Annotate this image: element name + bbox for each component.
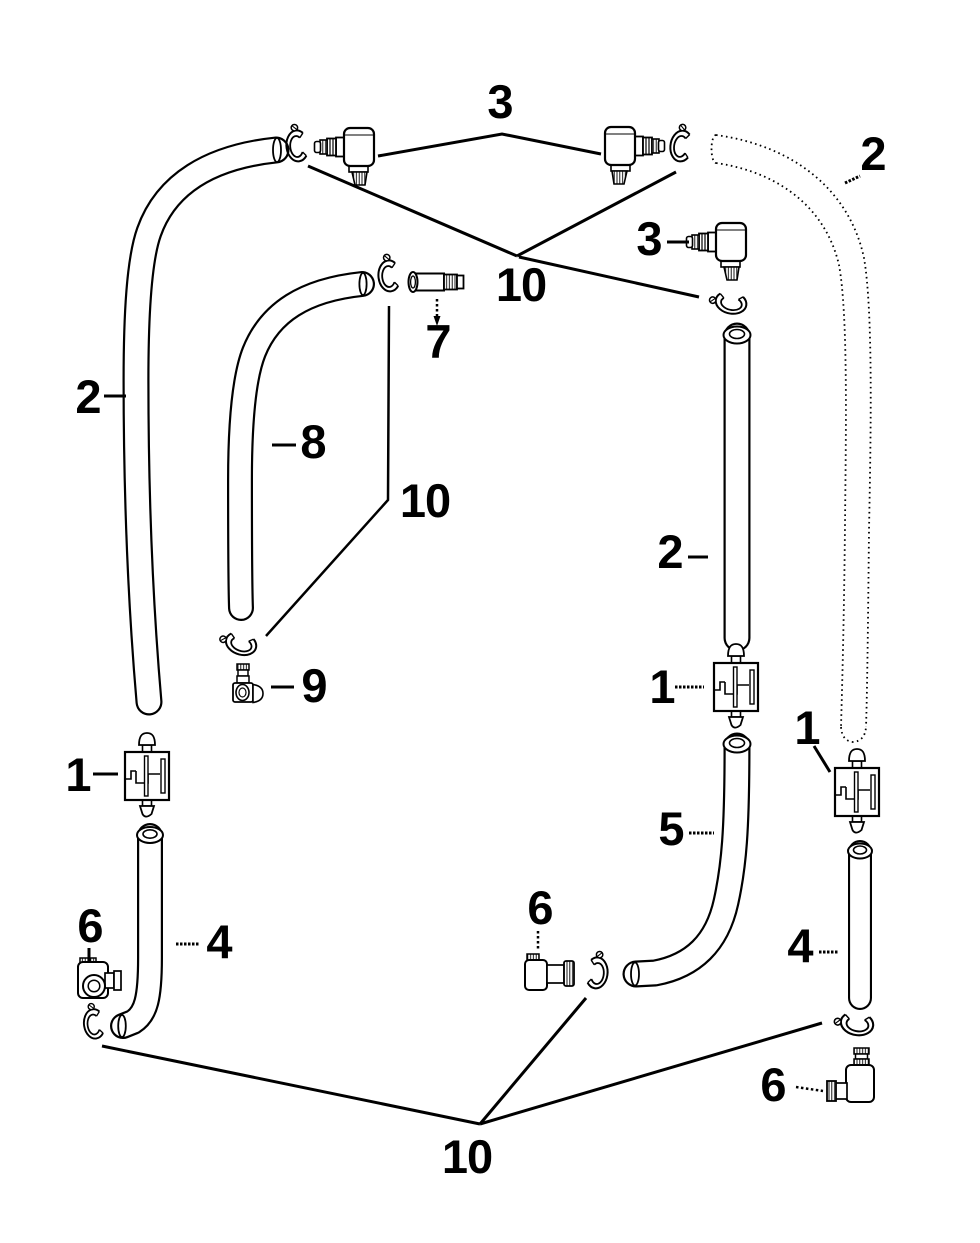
clamp-top-right — [668, 123, 692, 162]
elbow-connector-3-right — [687, 223, 747, 280]
fitting-7 — [409, 272, 464, 292]
hose-5 — [631, 736, 751, 986]
connector-1-left — [125, 733, 169, 817]
clamp-bottom-right — [833, 1011, 875, 1037]
fitting-6-left — [78, 958, 121, 998]
callout-1-left: 1 — [65, 748, 90, 801]
callout-6-left: 6 — [77, 899, 102, 952]
hose-5-opening — [631, 963, 639, 986]
hose-4-right-bore — [854, 846, 867, 854]
callout-10-bottom: 10 — [442, 1130, 492, 1183]
callout-2-middle-right: 2 — [657, 525, 682, 578]
callout-4-left: 4 — [206, 915, 232, 968]
callout-2-left: 2 — [75, 370, 100, 423]
callout-9: 9 — [301, 659, 326, 712]
callout-3-top: 3 — [487, 75, 512, 128]
leader-10-top-a — [308, 166, 517, 256]
hose-4-left-bore — [143, 830, 157, 838]
clamp-hose-8-end — [217, 629, 258, 659]
elbow-connector-3-top-left — [315, 128, 375, 185]
fitting-6-middle — [525, 954, 574, 990]
hose-5-bore — [730, 739, 745, 748]
callout-10-top: 10 — [496, 258, 546, 311]
leader-6-bottom-right — [796, 1087, 823, 1091]
leader-10-bottom-a — [102, 1046, 480, 1124]
parts-diagram: 32310728102911156644610 — [0, 0, 980, 1243]
hose-4-right — [848, 844, 872, 999]
connector-1-middle-right — [714, 644, 758, 728]
callout-5: 5 — [658, 802, 683, 855]
callout-6-middle: 6 — [527, 881, 552, 934]
hose-8-opening — [359, 273, 366, 295]
callout-3-right: 3 — [636, 212, 661, 265]
callout-labels: 32310728102911156644610 — [65, 75, 885, 1183]
callout-1-middle-right: 1 — [649, 660, 674, 713]
fitting-6-bottom-right — [827, 1048, 874, 1102]
clamp-near-fitting-7 — [377, 254, 399, 292]
leader-3-top — [378, 134, 601, 156]
clamp-right-under-elbow — [708, 290, 748, 316]
hose-2-left-opening — [273, 138, 281, 162]
fitting-9 — [233, 664, 263, 703]
hose-2-middle-bore — [730, 330, 745, 339]
callout-7: 7 — [425, 315, 450, 368]
connector-1-far-right — [835, 749, 879, 833]
hose-4-left-opening — [118, 1015, 126, 1037]
callout-4-right: 4 — [787, 919, 813, 972]
callout-2-top-right: 2 — [860, 127, 885, 180]
callout-1-far-right: 1 — [794, 701, 819, 754]
leader-10-bottom-b — [480, 998, 586, 1124]
parts-diagram-page: 32310728102911156644610 — [0, 0, 980, 1243]
hose-2-middle-tube — [724, 327, 751, 639]
callout-8: 8 — [300, 415, 325, 468]
callout-6-bottom-right: 6 — [760, 1058, 785, 1111]
clamp-bottom-left — [82, 1003, 104, 1040]
clamp-top-left — [285, 124, 307, 163]
callout-10-middle: 10 — [400, 474, 450, 527]
leader-10-middle — [266, 306, 389, 636]
leader-2-top-right — [845, 176, 860, 183]
clamp-bottom-middle — [587, 951, 609, 990]
hose-4-left — [118, 827, 163, 1037]
elbow-connector-3-top-right — [605, 127, 665, 184]
hose-2-left — [136, 138, 281, 702]
